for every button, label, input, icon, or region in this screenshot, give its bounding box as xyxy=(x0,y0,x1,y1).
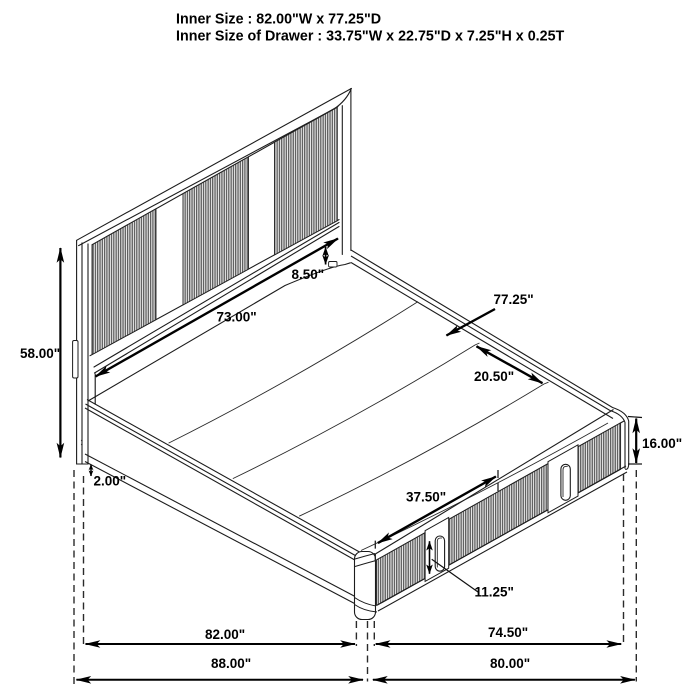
svg-text:11.25": 11.25" xyxy=(475,585,514,600)
svg-text:2.00": 2.00" xyxy=(94,474,127,489)
svg-text:74.50": 74.50" xyxy=(488,625,528,640)
svg-text:Inner Size of Drawer : 33.75"W: Inner Size of Drawer : 33.75"W x 22.75"D… xyxy=(176,28,565,44)
svg-text:8.50": 8.50" xyxy=(292,267,325,282)
svg-text:Inner Size : 82.00"W x 77.25"D: Inner Size : 82.00"W x 77.25"D xyxy=(176,12,381,28)
svg-text:88.00": 88.00" xyxy=(211,656,251,671)
svg-text:37.50": 37.50" xyxy=(406,490,446,505)
svg-text:20.50": 20.50" xyxy=(474,369,514,384)
svg-text:82.00": 82.00" xyxy=(205,627,245,642)
svg-text:58.00": 58.00" xyxy=(20,346,60,361)
svg-text:73.00": 73.00" xyxy=(217,310,257,325)
svg-text:77.25": 77.25" xyxy=(494,292,534,307)
svg-text:80.00": 80.00" xyxy=(490,656,530,671)
svg-text:16.00": 16.00" xyxy=(642,436,682,451)
